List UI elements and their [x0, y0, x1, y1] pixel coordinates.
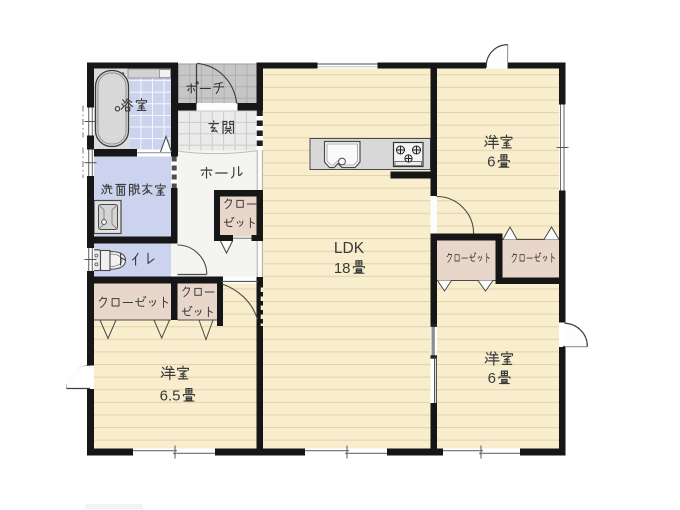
- svg-text:6: 6: [488, 370, 496, 387]
- svg-text:6: 6: [487, 154, 495, 171]
- svg-text:LDK: LDK: [334, 240, 365, 257]
- svg-text:6.5: 6.5: [160, 387, 181, 404]
- svg-text:18: 18: [334, 260, 351, 277]
